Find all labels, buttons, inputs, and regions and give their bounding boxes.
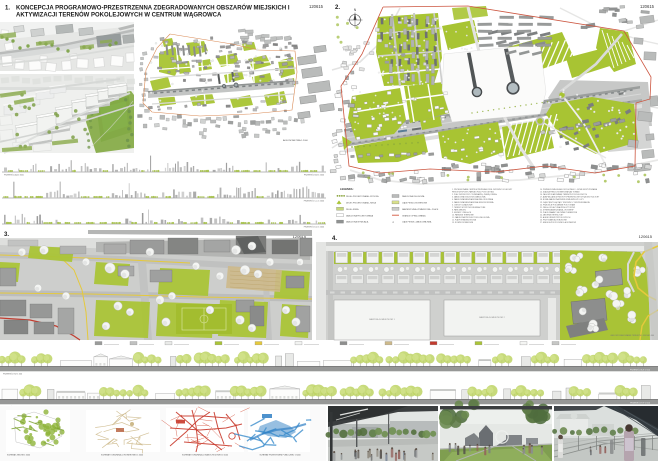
svg-text:SCHEMAT KOMUNIKACJI SAMOCHODOW: SCHEMAT KOMUNIKACJI SAMOCHODOWEJ 1:5000 xyxy=(182,454,228,457)
svg-text:ZIELEń NISKA: ZIELEń NISKA xyxy=(346,208,359,211)
svg-text:ZABUDOWA ISTNIEJĄCA: ZABUDOWA ISTNIEJĄCA xyxy=(346,221,369,224)
svg-text:4.: 4. xyxy=(332,236,337,242)
svg-text:ZIELEń PROJEKTOWANA - NISKA: ZIELEń PROJEKTOWANA - NISKA xyxy=(346,202,377,205)
svg-text:120615: 120615 xyxy=(309,4,324,9)
svg-text:23. PLACE ZABAW I SIŁOWNIE PLE: 23. PLACE ZABAW I SIŁOWNIE PLENEROWE xyxy=(540,211,578,214)
svg-text:SCHEMAT PRZESTRZENI PUBLICZNEJ: SCHEMAT PRZESTRZENI PUBLICZNEJ 1:5000 xyxy=(259,454,300,457)
svg-text:PRZEKRÓJ F-F 1:500: PRZEKRÓJ F-F 1:500 xyxy=(630,401,651,404)
svg-text:13. ŚCIEŻKI ROWEROWE: 13. ŚCIEŻKI ROWEROWE xyxy=(452,221,474,224)
svg-text:16. ZAGOSPODAROWANIE TERENÓW P: 16. ZAGOSPODAROWANIE TERENÓW POKOLEJOWYC… xyxy=(540,193,588,196)
svg-text:PRZEKRÓJ E-E 1:500: PRZEKRÓJ E-E 1:500 xyxy=(630,368,651,371)
svg-text:PRZEKRÓJ B-B 1:1000: PRZEKRÓJ B-B 1:1000 xyxy=(304,173,324,176)
svg-text:AKTYWIZACJI TERENÓW POKOLEJOWY: AKTYWIZACJI TERENÓW POKOLEJOWYCH W CENTR… xyxy=(16,11,222,19)
svg-text:CIĄGI PIESZO-ROWEROWE: CIĄGI PIESZO-ROWEROWE xyxy=(402,202,428,205)
svg-text:PRZEKRÓJ E-E 1:500: PRZEKRÓJ E-E 1:500 xyxy=(3,373,22,376)
svg-text:FABRYKA DOMEKÓW NR 1: FABRYKA DOMEKÓW NR 1 xyxy=(369,318,395,321)
svg-text:10. PARKINGI TERENOWE: 10. PARKINGI TERENOWE xyxy=(452,214,475,217)
svg-text:21. ZIELEń IZOLACYJNA WZDŁUŻ T: 21. ZIELEń IZOLACYJNA WZDŁUŻ TORÓW xyxy=(540,206,575,209)
svg-text:18. NOWA ZABUDOWA PIERZEJOWA W: 18. NOWA ZABUDOWA PIERZEJOWA WZDŁUŻ ULIC… xyxy=(540,198,585,201)
svg-text:2. PLAC DWORCOWY Z DOMINANTĄ -: 2. PLAC DWORCOWY Z DOMINANTĄ - WIEŻĄ CIŚ… xyxy=(452,193,497,196)
svg-text:AKSONOMETRIA 1:2000: AKSONOMETRIA 1:2000 xyxy=(283,139,309,142)
svg-text:1. ZINTEGROWANE CENTRUM PRZESI: 1. ZINTEGROWANE CENTRUM PRZESIADKOWE: DW… xyxy=(452,188,513,191)
svg-text:CIĄGI PIESZE, ZABUDOWA INNA: CIĄGI PIESZE, ZABUDOWA INNA xyxy=(402,221,432,224)
svg-text:26. PRZYSTANKI AUTOBUSOWE: 26. PRZYSTANKI AUTOBUSOWE xyxy=(540,219,568,222)
svg-text:ZABUDOWA USŁUGOWA: ZABUDOWA USŁUGOWA xyxy=(402,195,425,198)
svg-text:4. ZABUDOWA MIESZKANIOWA WIELO: 4. ZABUDOWA MIESZKANIOWA WIELORODZINNA xyxy=(452,198,494,201)
svg-text:NAWIERZCHNIA UTWARDZONA - PLAC: NAWIERZCHNIA UTWARDZONA - PLACE xyxy=(402,208,439,211)
svg-text:SCHEMAT KOMUNIKACJI ROWEROWEJ: SCHEMAT KOMUNIKACJI ROWEROWEJ 1:5000 xyxy=(101,454,143,457)
svg-text:2.: 2. xyxy=(335,5,340,11)
svg-text:ZIELEń PROJEKTOWANA - WYSOKA: ZIELEń PROJEKTOWANA - WYSOKA xyxy=(346,195,379,198)
svg-text:1.: 1. xyxy=(5,6,10,12)
svg-text:PRZEKRÓJ A-A 1:1000: PRZEKRÓJ A-A 1:1000 xyxy=(4,173,24,176)
svg-text:14. PRZEBUDOWA UKŁADU DROGOWEG: 14. PRZEBUDOWA UKŁADU DROGOWEGO - NOWE S… xyxy=(540,188,598,191)
svg-text:12. PLATFORMA WIDOKOWA: 12. PLATFORMA WIDOKOWA xyxy=(452,219,477,222)
svg-text:27. MIEJSCA POSTOJOWE DLA ROWE: 27. MIEJSCA POSTOJOWE DLA ROWERÓW xyxy=(540,221,576,224)
svg-text:SCHEMAT ZIELENI 1:5000: SCHEMAT ZIELENI 1:5000 xyxy=(7,454,30,457)
svg-text:LEGENDA:: LEGENDA: xyxy=(340,187,354,191)
svg-text:PRZEKRÓJ C-C 1:1000: PRZEKRÓJ C-C 1:1000 xyxy=(304,199,324,202)
svg-text:ZAGOSPODAROWANIE TERENÓW - WIZ: ZAGOSPODAROWANIE TERENÓW - WIZJA 1:500 xyxy=(610,334,654,337)
svg-text:▲: ▲ xyxy=(392,221,394,224)
svg-text:FABRYKA DOMEKÓW NR 2: FABRYKA DOMEKÓW NR 2 xyxy=(479,316,505,319)
svg-text:PRZEKRÓJ D-D 1:1000: PRZEKRÓJ D-D 1:1000 xyxy=(304,225,324,228)
svg-text:7. TERENY SPORTOWO-REKREACYJNE: 7. TERENY SPORTOWO-REKREACYJNE xyxy=(452,206,486,209)
svg-text:ZABUDOWA PROJEKTOWANA: ZABUDOWA PROJEKTOWANA xyxy=(346,214,374,217)
svg-text:120615: 120615 xyxy=(639,234,653,239)
svg-text:KONCEPCJA PROGRAMOWO-PRZESTRZE: KONCEPCJA PROGRAMOWO-PRZESTRZENNA ZDEGRA… xyxy=(16,4,290,12)
svg-text:120615: 120615 xyxy=(640,4,655,9)
svg-text:GRANICE OPRACOWANIA: GRANICE OPRACOWANIA xyxy=(402,214,426,217)
svg-text:3.: 3. xyxy=(4,232,9,238)
